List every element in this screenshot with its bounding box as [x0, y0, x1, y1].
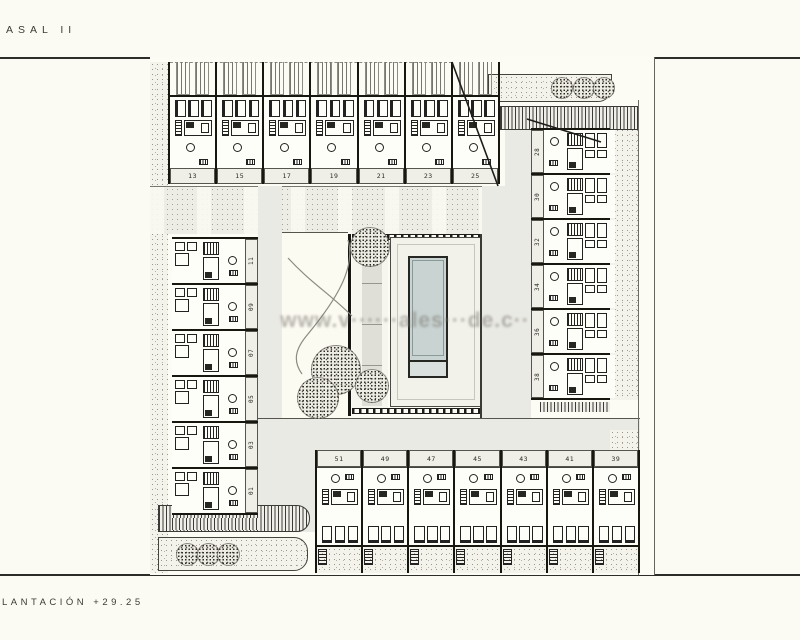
unit-cell: 01 [172, 467, 258, 513]
staircase-symbol [316, 120, 323, 136]
table-symbol [375, 143, 384, 152]
fixture-symbol [530, 474, 539, 480]
tree-symbol [297, 377, 339, 419]
unit-number-label: 49 [363, 450, 407, 467]
fixture-symbol [576, 474, 585, 480]
wardrobe-symbols [175, 100, 212, 117]
wardrobe-symbols [175, 334, 201, 372]
kitchen-symbol [203, 303, 219, 326]
living-area [222, 136, 259, 168]
table-symbol [550, 362, 559, 371]
planting-strip-left [150, 62, 168, 573]
unit-number-label: 34 [531, 265, 544, 308]
wardrobe-symbols [585, 133, 612, 170]
living-area [547, 268, 565, 305]
fixture-symbol [199, 159, 208, 165]
unit-floorplan [544, 355, 615, 398]
table-symbol [422, 143, 431, 152]
unit-row-bottom: 51 49 [315, 450, 640, 573]
table-symbol [327, 143, 336, 152]
bathroom-symbol [467, 120, 495, 136]
bathroom-symbol [184, 120, 212, 136]
bathroom-symbol [331, 489, 358, 505]
wardrobe-symbols [316, 100, 353, 117]
unit-cell: 28 [531, 128, 610, 173]
fixture-symbol [229, 270, 238, 276]
garden-patch [594, 545, 638, 573]
unit-number-label: 28 [531, 130, 544, 173]
living-area [221, 334, 242, 372]
deck-steps-bottom [352, 408, 482, 414]
unit-number-label: 23 [406, 168, 451, 184]
living-area [221, 242, 242, 280]
unit-cell: 43 [500, 450, 546, 573]
pool-steps [410, 360, 446, 376]
terrace-louvers [264, 62, 309, 95]
fixture-symbol [229, 408, 238, 414]
staircase-symbol [567, 358, 583, 371]
table-symbol [233, 143, 242, 152]
unit-cell: 21 [357, 62, 404, 184]
living-area [221, 472, 242, 510]
staircase-symbol [203, 242, 219, 255]
wardrobe-symbols [322, 526, 358, 543]
living-area [458, 136, 495, 168]
terrace-louvers [217, 62, 262, 95]
unit-cell: 23 [404, 62, 451, 184]
staircase-symbol [567, 178, 583, 191]
tree-symbol [176, 543, 199, 566]
terrace-louvers [311, 62, 356, 95]
table-symbol [469, 143, 478, 152]
kitchen-symbol [203, 487, 219, 510]
bathroom-symbol [278, 120, 306, 136]
living-area [547, 358, 565, 395]
watermark: www.v······ales···de.c·· [225, 309, 585, 337]
kitchen-symbol [567, 238, 583, 260]
staircase-symbol [364, 120, 371, 136]
unit-cell: 51 [315, 450, 361, 573]
unit-number-label: 41 [548, 450, 592, 467]
pergola-right-column-end [540, 402, 610, 412]
terrace-louvers [170, 62, 215, 95]
staircase-symbol [567, 223, 583, 236]
kitchen-symbol [203, 441, 219, 464]
staircase-symbol [203, 334, 219, 347]
kitchen-symbol [203, 395, 219, 418]
unit-row-top: 13 15 [168, 62, 500, 184]
bathroom-symbol [420, 120, 448, 136]
fixture-symbol [229, 362, 238, 368]
living-area [221, 380, 242, 418]
unit-column-right: 28 30 [531, 128, 610, 400]
unit-floorplan [170, 95, 215, 168]
fixture-symbol [622, 474, 631, 480]
unit-cell: 34 [531, 263, 610, 308]
living-area [269, 136, 306, 168]
terrace-louvers [406, 62, 451, 95]
unit-floorplan [544, 220, 615, 263]
table-symbol [331, 474, 340, 483]
unit-floorplan [172, 331, 245, 375]
pool-waterline [412, 260, 444, 356]
wardrobe-symbols [460, 526, 496, 543]
fixture-symbol [549, 295, 558, 301]
tree-symbol [593, 77, 615, 99]
wardrobe-symbols [585, 223, 612, 260]
wardrobe-symbols [368, 526, 404, 543]
bathroom-symbol [373, 120, 401, 136]
fixture-symbol [341, 159, 350, 165]
staircase-symbol [553, 489, 560, 505]
plan-caption: LANTACIÓN +29.25 [2, 597, 144, 608]
staircase-symbol [567, 268, 583, 281]
garden-patch [363, 545, 407, 573]
living-area [368, 471, 404, 489]
wardrobe-symbols [175, 426, 201, 464]
table-symbol [377, 474, 386, 483]
living-area [414, 471, 450, 489]
fixture-symbol [549, 340, 558, 346]
unit-number-label: 32 [531, 220, 544, 263]
entrance-gardens-band [150, 186, 490, 234]
fixture-symbol [549, 385, 558, 391]
unit-floorplan [172, 423, 245, 467]
wardrobe-symbols [411, 100, 448, 117]
wardrobe-symbols [458, 100, 495, 117]
table-symbol [469, 474, 478, 483]
unit-floorplan [359, 95, 404, 168]
wardrobe-symbols [175, 288, 201, 326]
unit-number-label: 25 [453, 168, 498, 184]
unit-cell: 25 [451, 62, 498, 184]
walkway-bottom [258, 418, 640, 450]
wardrobe-symbols [585, 313, 612, 350]
unit-column-left: 11 09 [172, 237, 258, 515]
living-area [553, 471, 589, 489]
unit-floorplan [264, 95, 309, 168]
unit-cell: 49 [361, 450, 407, 573]
unit-floorplan [455, 467, 499, 545]
unit-floorplan [502, 467, 546, 545]
unit-cell: 38 [531, 353, 610, 398]
unit-cell: 11 [172, 237, 258, 283]
kitchen-symbol [567, 148, 583, 170]
tree-symbol [551, 77, 573, 99]
living-area [175, 136, 212, 168]
unit-cell: 32 [531, 218, 610, 263]
fixture-symbol [482, 159, 491, 165]
unit-cell: 17 [262, 62, 309, 184]
bathroom-symbol [516, 489, 543, 505]
unit-cell: 47 [407, 450, 453, 573]
terrace-louvers [359, 62, 404, 95]
unit-cell: 13 [168, 62, 215, 184]
unit-floorplan [453, 95, 498, 168]
table-symbol [228, 348, 237, 357]
staircase-symbol [203, 380, 219, 393]
fixture-symbol [549, 160, 558, 166]
wardrobe-symbols [175, 380, 201, 418]
fixture-symbol [549, 205, 558, 211]
fixture-symbol [229, 454, 238, 460]
staircase-symbol [203, 288, 219, 301]
table-symbol [550, 227, 559, 236]
bathroom-symbol [377, 489, 404, 505]
unit-number-label: 15 [217, 168, 262, 184]
unit-floorplan [406, 95, 451, 168]
wardrobe-symbols [585, 268, 612, 305]
fixture-symbol [345, 474, 354, 480]
unit-number-label: 03 [245, 423, 258, 467]
unit-number-label: 45 [455, 450, 499, 467]
staircase-symbol [269, 120, 276, 136]
unit-cell: 19 [309, 62, 356, 184]
staircase-symbol [507, 489, 514, 505]
garden-patch [317, 545, 361, 573]
living-area [507, 471, 543, 489]
wardrobe-symbols [507, 526, 543, 543]
living-area [599, 471, 635, 489]
unit-floorplan [172, 377, 245, 421]
staircase-symbol [175, 120, 182, 136]
unit-floorplan [172, 469, 245, 513]
wardrobe-symbols [585, 178, 612, 215]
unit-cell: 30 [531, 173, 610, 218]
unit-number-label: 39 [594, 450, 638, 467]
unit-number-label: 05 [245, 377, 258, 421]
bathroom-symbol [562, 489, 589, 505]
table-symbol [228, 486, 237, 495]
unit-floorplan [409, 467, 453, 545]
fixture-symbol [549, 250, 558, 256]
table-symbol [228, 256, 237, 265]
unit-number-label: 11 [245, 239, 258, 283]
unit-cell: 39 [592, 450, 638, 573]
bathroom-symbol [325, 120, 353, 136]
fixture-symbol [229, 500, 238, 506]
walkway-right-upper [505, 128, 531, 188]
bathroom-symbol [231, 120, 259, 136]
wardrobe-symbols [414, 526, 450, 543]
wardrobe-symbols [553, 526, 589, 543]
staircase-symbol [599, 489, 606, 505]
table-symbol [550, 182, 559, 191]
unit-number-label: 01 [245, 469, 258, 513]
staircase-symbol [460, 489, 467, 505]
bathroom-symbol [469, 489, 496, 505]
staircase-symbol [203, 472, 219, 485]
living-area [547, 178, 565, 215]
kitchen-symbol [203, 257, 219, 280]
bathroom-symbol [423, 489, 450, 505]
living-area [411, 136, 448, 168]
unit-floorplan [217, 95, 262, 168]
unit-number-label: 47 [409, 450, 453, 467]
tree-symbol [350, 227, 390, 267]
wardrobe-symbols [599, 526, 635, 543]
unit-cell: 03 [172, 421, 258, 467]
tree-symbol [355, 369, 389, 403]
unit-number-label: 21 [359, 168, 404, 184]
living-area [316, 136, 353, 168]
staircase-symbol [567, 133, 583, 146]
pergola-left-column-end [172, 518, 258, 530]
staircase-symbol [414, 489, 421, 505]
garden-patch [409, 545, 453, 573]
unit-floorplan [544, 175, 615, 218]
table-symbol [562, 474, 571, 483]
unit-floorplan [544, 265, 615, 308]
unit-cell: 05 [172, 375, 258, 421]
unit-floorplan [548, 467, 592, 545]
living-area [460, 471, 496, 489]
table-symbol [228, 440, 237, 449]
unit-floorplan [594, 467, 638, 545]
tree-symbol [217, 543, 240, 566]
wardrobe-symbols [269, 100, 306, 117]
fixture-symbol [437, 474, 446, 480]
pergola-top-right [500, 106, 638, 130]
page-title: ASAL II [6, 24, 76, 36]
fixture-symbol [388, 159, 397, 165]
bathroom-symbol [608, 489, 635, 505]
living-area [322, 471, 358, 489]
kitchen-symbol [567, 373, 583, 395]
unit-cell: 15 [215, 62, 262, 184]
living-area [221, 426, 242, 464]
unit-cell: 45 [453, 450, 499, 573]
unit-floorplan [363, 467, 407, 545]
site-plan-canvas: ASAL II LANTACIÓN +29.25 [0, 0, 800, 640]
unit-number-label: 30 [531, 175, 544, 218]
unit-cell: 41 [546, 450, 592, 573]
unit-floorplan [172, 239, 245, 283]
table-symbol [228, 394, 237, 403]
kitchen-symbol [567, 193, 583, 215]
staircase-symbol [222, 120, 229, 136]
living-area [547, 133, 565, 170]
staircase-symbol [458, 120, 465, 136]
unit-number-label: 38 [531, 355, 544, 398]
garden-patch [548, 545, 592, 573]
unit-number-label: 43 [502, 450, 546, 467]
terrace-louvers [453, 62, 498, 95]
fixture-symbol [391, 474, 400, 480]
wardrobe-symbols [585, 358, 612, 395]
wardrobe-symbols [175, 242, 201, 280]
living-area [364, 136, 401, 168]
unit-number-label: 17 [264, 168, 309, 184]
wardrobe-symbols [222, 100, 259, 117]
garden-patch [455, 545, 499, 573]
staircase-symbol [368, 489, 375, 505]
wardrobe-symbols [364, 100, 401, 117]
garden-patch [502, 545, 546, 573]
table-symbol [186, 143, 195, 152]
fixture-symbol [484, 474, 493, 480]
fixture-symbol [435, 159, 444, 165]
fixture-symbol [293, 159, 302, 165]
unit-floorplan [317, 467, 361, 545]
table-symbol [423, 474, 432, 483]
unit-number-label: 13 [170, 168, 215, 184]
table-symbol [280, 143, 289, 152]
living-area [547, 223, 565, 260]
kitchen-symbol [203, 349, 219, 372]
unit-floorplan [544, 130, 615, 173]
table-symbol [550, 272, 559, 281]
staircase-symbol [411, 120, 418, 136]
unit-number-label: 07 [245, 331, 258, 375]
unit-number-label: 51 [317, 450, 361, 467]
unit-floorplan [311, 95, 356, 168]
table-symbol [550, 137, 559, 146]
table-symbol [516, 474, 525, 483]
kitchen-symbol [567, 283, 583, 305]
unit-number-label: 19 [311, 168, 356, 184]
staircase-symbol [322, 489, 329, 505]
fixture-symbol [246, 159, 255, 165]
wardrobe-symbols [175, 472, 201, 510]
staircase-symbol [203, 426, 219, 439]
tree-symbol [573, 77, 595, 99]
table-symbol [608, 474, 617, 483]
